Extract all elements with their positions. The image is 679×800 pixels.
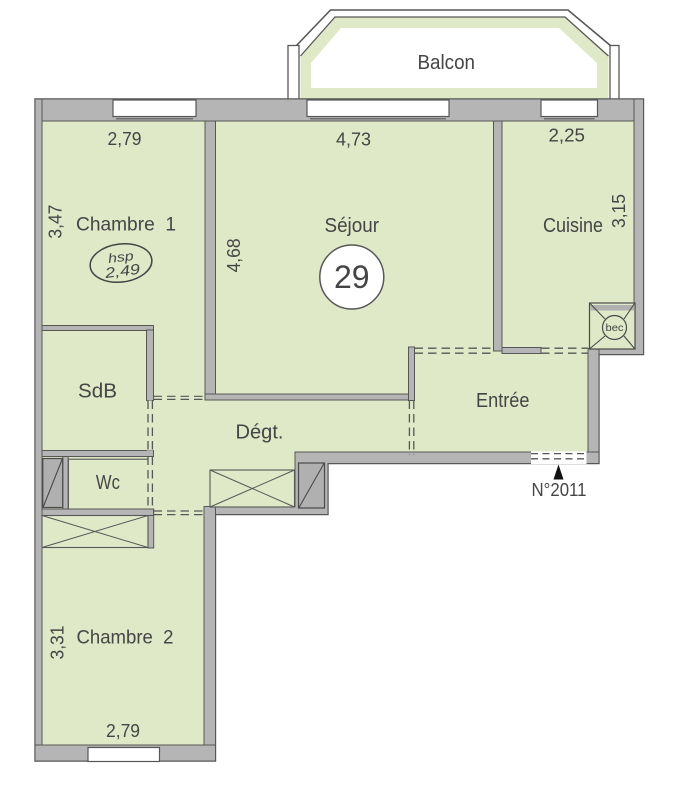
svg-text:bec: bec bbox=[606, 323, 624, 334]
svg-text:N°2011: N°2011 bbox=[532, 480, 587, 500]
svg-text:SdB: SdB bbox=[78, 381, 117, 403]
svg-text:Séjour: Séjour bbox=[325, 215, 380, 237]
svg-text:2,25: 2,25 bbox=[549, 126, 586, 146]
svg-text:Wc: Wc bbox=[96, 472, 120, 494]
svg-text:Balcon: Balcon bbox=[418, 52, 476, 74]
svg-text:3,15: 3,15 bbox=[609, 194, 629, 228]
svg-text:4,73: 4,73 bbox=[336, 130, 371, 150]
svg-text:Dégt.: Dégt. bbox=[236, 422, 284, 444]
svg-text:Chambre 1: Chambre 1 bbox=[76, 214, 176, 236]
svg-text:Entrée: Entrée bbox=[476, 390, 530, 412]
svg-text:4,68: 4,68 bbox=[224, 238, 244, 272]
svg-text:2,79: 2,79 bbox=[106, 721, 140, 741]
svg-text:29: 29 bbox=[334, 259, 370, 295]
svg-text:2,79: 2,79 bbox=[108, 129, 142, 149]
svg-text:3,31: 3,31 bbox=[48, 626, 68, 660]
svg-text:3,47: 3,47 bbox=[46, 205, 66, 239]
svg-text:Chambre 2: Chambre 2 bbox=[77, 627, 174, 649]
svg-text:Cuisine: Cuisine bbox=[543, 215, 603, 237]
